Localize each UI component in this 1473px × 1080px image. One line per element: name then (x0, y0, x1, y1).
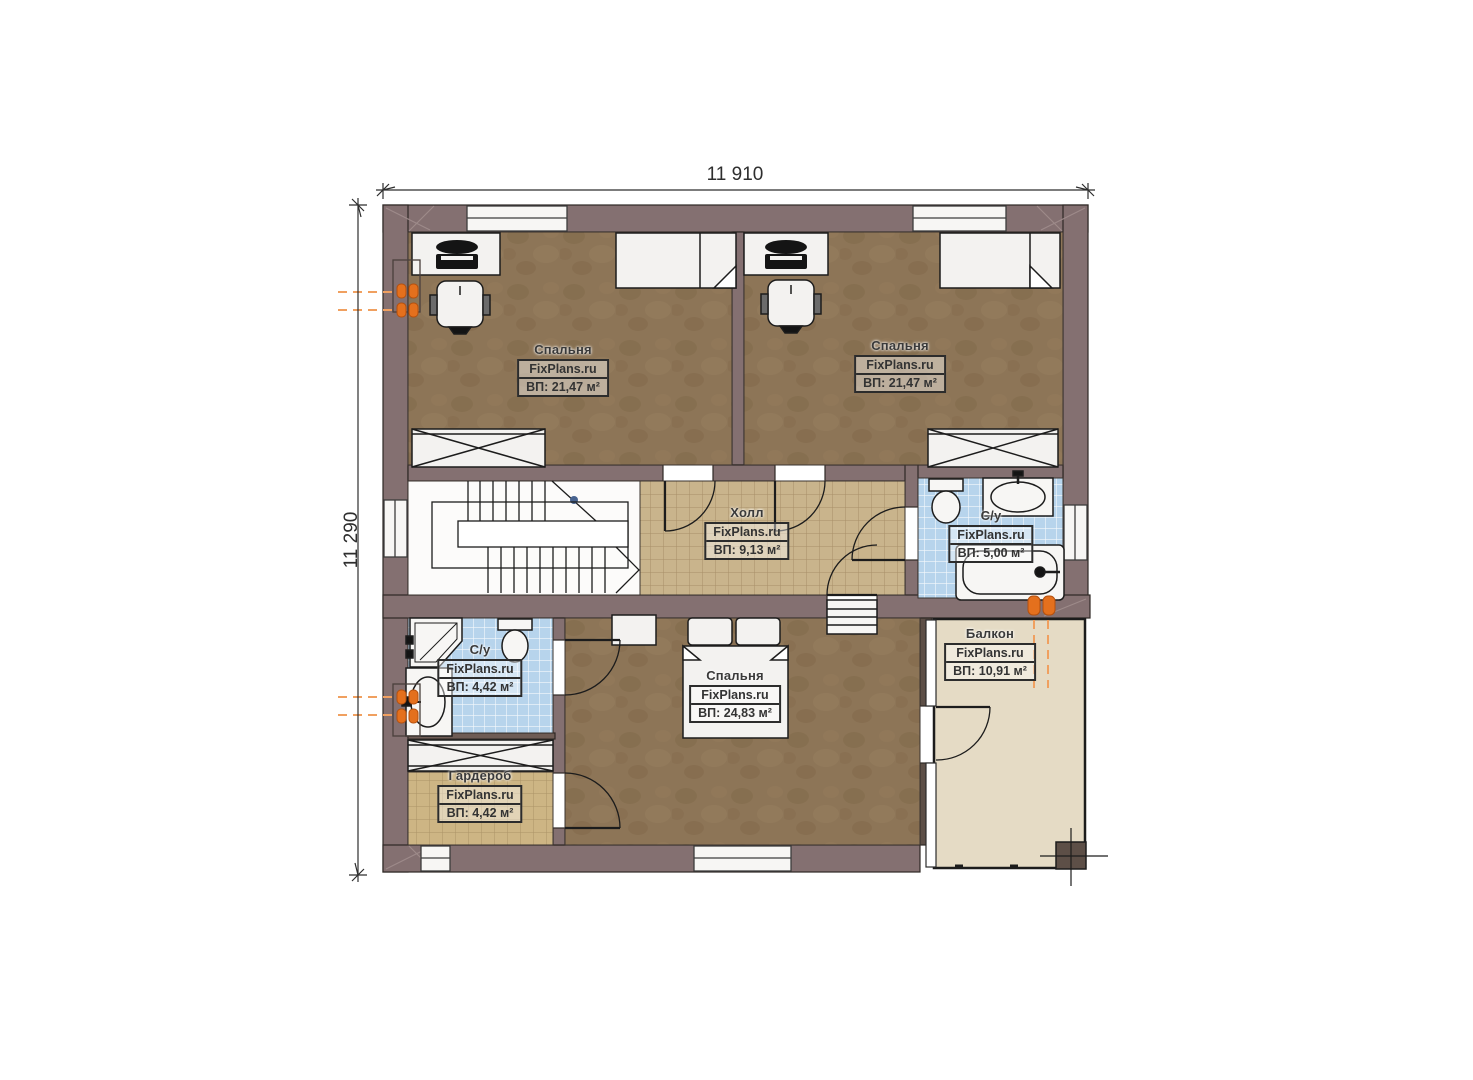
pillow (688, 618, 732, 645)
room-area: ВП: 4,42 м² (439, 805, 520, 821)
balcony-glazing-top (926, 620, 936, 706)
window-left (384, 500, 407, 557)
room-name: Балкон (944, 626, 1036, 641)
room-label-bedroom-top-left: Спальня FixPlans.ru ВП: 21,47 м² (517, 342, 609, 397)
room-label-hall: Холл FixPlans.ru ВП: 9,13 м² (704, 505, 789, 560)
window-top-2 (913, 206, 1006, 231)
printer-icon (765, 240, 807, 269)
window-bottom-2 (694, 846, 791, 871)
room-info-box: FixPlans.ru ВП: 24,83 м² (689, 685, 781, 723)
room-info-box: FixPlans.ru ВП: 9,13 м² (704, 522, 789, 560)
printer-icon (436, 240, 478, 269)
wardrobe-cabinet (928, 429, 1058, 467)
room-name: Холл (704, 505, 789, 520)
room-name: Спальня (854, 338, 946, 353)
room-label-bathroom-bottom: С/у FixPlans.ru ВП: 4,42 м² (437, 642, 522, 697)
room-info-box: FixPlans.ru ВП: 4,42 м² (437, 659, 522, 697)
window-bottom-1 (421, 846, 450, 871)
brand-label: FixPlans.ru (706, 524, 787, 542)
brand-label: FixPlans.ru (519, 361, 607, 379)
window-right (1064, 505, 1087, 560)
dimension-height-label: 11 290 (341, 512, 363, 569)
room-area: ВП: 21,47 м² (856, 375, 944, 391)
stair-cut-marker (570, 496, 578, 504)
room-label-balcony: Балкон FixPlans.ru ВП: 10,91 м² (944, 626, 1036, 681)
brand-label: FixPlans.ru (950, 527, 1031, 545)
room-name: Спальня (517, 342, 609, 357)
room-name: Спальня (689, 668, 781, 683)
room-area: ВП: 5,00 м² (950, 545, 1031, 561)
dimension-width-label: 11 910 (707, 164, 764, 186)
wardrobe-cabinet (412, 429, 545, 467)
room-label-bedroom-bottom: Спальня FixPlans.ru ВП: 24,83 м² (689, 668, 781, 723)
bed-single (616, 233, 736, 288)
brand-label: FixPlans.ru (439, 787, 520, 805)
pillow (736, 618, 780, 645)
room-area: ВП: 10,91 м² (946, 663, 1034, 679)
stair-landing (458, 521, 628, 547)
room-name: С/у (437, 642, 522, 657)
closet-cabinet (408, 740, 553, 771)
brand-label: FixPlans.ru (691, 687, 779, 705)
floor-plan-canvas: 11 910 11 290 Спальня FixPlans.ru ВП: 21… (0, 0, 1473, 1080)
bed-single (940, 233, 1060, 288)
room-label-bathroom-middle: С/у FixPlans.ru ВП: 5,00 м² (948, 508, 1033, 563)
room-info-box: FixPlans.ru ВП: 4,42 м² (437, 785, 522, 823)
room-info-box: FixPlans.ru ВП: 21,47 м² (854, 355, 946, 393)
room-area: ВП: 24,83 м² (691, 705, 779, 721)
room-info-box: FixPlans.ru ВП: 5,00 м² (948, 525, 1033, 563)
room-area: ВП: 21,47 м² (519, 379, 607, 395)
threshold-step (827, 600, 877, 634)
room-area: ВП: 4,42 м² (439, 679, 520, 695)
room-info-box: FixPlans.ru ВП: 10,91 м² (944, 643, 1036, 681)
brand-label: FixPlans.ru (946, 645, 1034, 663)
room-name: С/у (948, 508, 1033, 523)
balcony-glazing-bottom (926, 763, 936, 867)
window-top-1 (467, 206, 567, 231)
brand-label: FixPlans.ru (856, 357, 944, 375)
room-name: Гардероб (437, 768, 522, 783)
room-label-wardrobe: Гардероб FixPlans.ru ВП: 4,42 м² (437, 768, 522, 823)
room-info-box: FixPlans.ru ВП: 21,47 м² (517, 359, 609, 397)
room-area: ВП: 9,13 м² (706, 542, 787, 558)
brand-label: FixPlans.ru (439, 661, 520, 679)
room-label-bedroom-top-right: Спальня FixPlans.ru ВП: 21,47 м² (854, 338, 946, 393)
